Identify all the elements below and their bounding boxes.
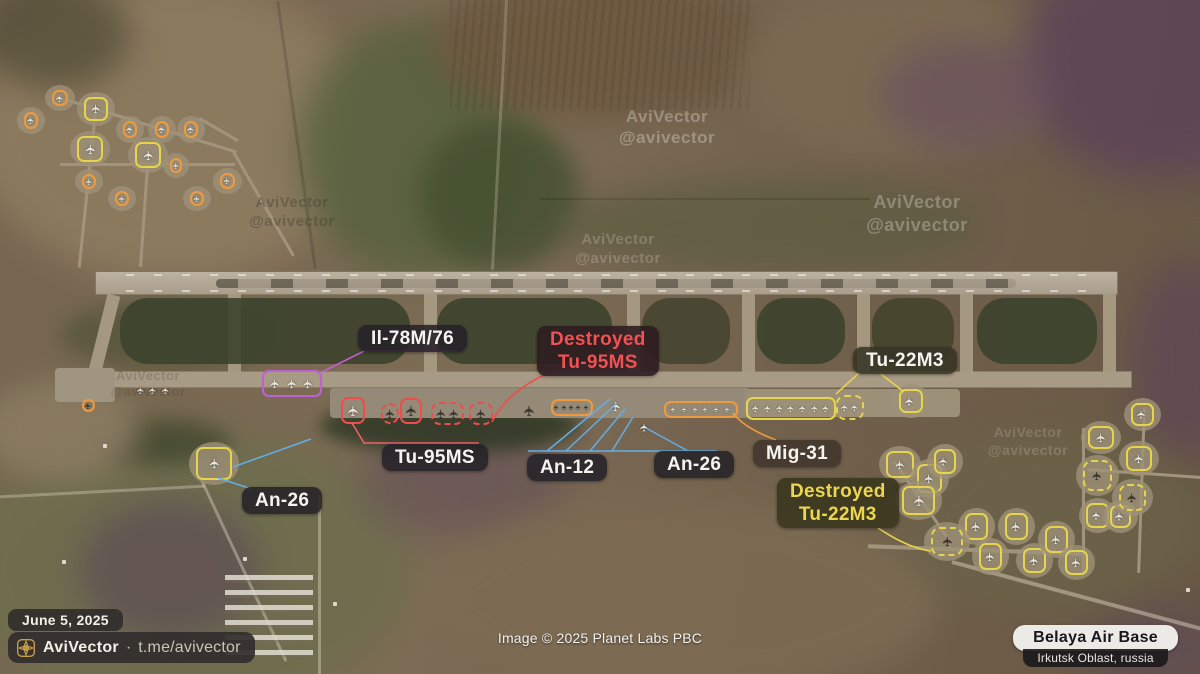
aircraft-icon: ✈: [404, 405, 418, 417]
building: [243, 557, 247, 561]
tu22m3-box: ✈: [902, 486, 935, 515]
aircraft-icon: ✈: [142, 150, 155, 161]
base-badge: Belaya Air Base Irkutsk Oblast, russia: [1013, 625, 1178, 667]
label-an26-right: An-26: [654, 451, 734, 478]
aircraft-icon: ✈: [569, 405, 576, 411]
aircraft-box: ✈: [82, 399, 95, 412]
aircraft-icon: ✈: [692, 407, 699, 413]
aircraft-icon: ✈: [118, 195, 126, 202]
destroyed-tu22m3-box: ✈: [931, 527, 963, 556]
aircraft-icon: ✈: [714, 407, 721, 413]
aircraft-icon: ✈: [193, 195, 201, 202]
aircraft-box: ✈: [52, 90, 68, 106]
annotated-satellite-view: AviVector@avivectorAviVector@avivectorAv…: [0, 0, 1200, 674]
label-line: Destroyed: [790, 480, 886, 503]
aircraft-icon: ✈: [822, 405, 831, 413]
aircraft-icon: ✈: [703, 407, 710, 413]
tu22m3-box: ✈: [899, 389, 923, 413]
tu95ms-box: ✈: [400, 398, 422, 424]
label-line: Tu-95MS: [558, 351, 638, 374]
aircraft-icon: ✈: [125, 126, 134, 134]
aircraft-icon: ✈: [798, 405, 807, 413]
aircraft-box: ✈: [115, 191, 129, 206]
tu22m3-box: ✈: [934, 449, 956, 474]
aircraft-icon: ✈: [763, 405, 772, 413]
label-line: Tu-22M3: [799, 503, 877, 526]
aircraft-icon: ✈: [641, 423, 652, 432]
infield-strip: [977, 298, 1097, 364]
tu22m3-box: ✈: [1126, 446, 1152, 471]
aircraft-box: ✈: [170, 158, 182, 173]
aircraft-icon: ✈: [148, 386, 157, 394]
aircraft-icon: ✈: [1051, 534, 1063, 544]
label-destroyed-tu22m3: Destroyed Tu-22M3: [777, 478, 899, 528]
aircraft-icon: ✈: [985, 551, 997, 561]
watermark: AviVector@avivector: [575, 231, 661, 269]
aircraft-icon: ✈: [940, 457, 951, 466]
aircraft-box: ✈: [190, 191, 204, 206]
aircraft-icon: ✈: [670, 407, 677, 413]
aircraft-icon: ✈: [223, 178, 231, 185]
aircraft-icon: ✈: [55, 94, 64, 102]
watermark-line: @avivector: [575, 250, 661, 269]
aircraft-icon: ✈: [1029, 555, 1041, 565]
aircraft-icon: ✈: [346, 405, 360, 417]
aircraft-icon: ✈: [941, 536, 954, 547]
aircraft-box: ✈: [123, 121, 137, 138]
watermark: AviVector@avivector: [619, 106, 715, 149]
aircraft-icon: ✈: [475, 408, 487, 418]
aircraft-box: ✈: [77, 136, 103, 162]
aircraft-icon: ✈: [786, 405, 795, 413]
tu22m3-box: ✈: [1088, 426, 1114, 449]
watermark: AviVector@avivector: [866, 191, 968, 236]
tu22m3-box: ✈: [1065, 550, 1088, 575]
runway-edge-marking: [126, 290, 1087, 292]
connector-taxiway: [742, 294, 755, 372]
aircraft-icon: ✈: [583, 405, 590, 411]
base-location: Irkutsk Oblast, russia: [1023, 649, 1167, 667]
building: [62, 560, 66, 564]
aircraft-box: ✈: [220, 173, 235, 189]
aircraft-icon: ✈: [971, 521, 983, 531]
aircraft-group-box: ✈✈✈✈✈: [551, 399, 593, 416]
connector-taxiway: [1103, 294, 1116, 372]
cloud-shadow: [880, 40, 1050, 150]
aircraft-box: ✈: [155, 121, 169, 138]
aircraft-box: ✈: [184, 121, 198, 138]
destroyed-tu22m3-box: ✈✈: [836, 395, 864, 420]
watermark-line: @avivector: [866, 214, 968, 237]
an26-box: ✈: [196, 447, 232, 480]
aircraft-icon: ✈: [172, 162, 180, 169]
label-tu95ms: Tu-95MS: [382, 444, 488, 471]
label-destroyed-tu95ms: Destroyed Tu-95MS: [537, 326, 659, 376]
aircraft-icon: ✈: [85, 178, 93, 185]
tu95ms-box: ✈: [341, 397, 365, 424]
infield-strip: [757, 298, 845, 364]
tu22m3-box: ✈: [979, 543, 1002, 570]
aircraft-icon: ✈: [26, 117, 35, 125]
runway-edge-marking: [126, 274, 1087, 276]
aircraft-icon: ✈: [840, 404, 849, 412]
aircraft-icon: ✈: [286, 378, 298, 388]
aircraft: ✈: [516, 400, 542, 422]
mig31-group-box: ✈✈✈✈✈✈: [664, 401, 738, 418]
tu22m3-box: ✈: [1131, 403, 1154, 426]
runway: [95, 271, 1118, 295]
watermark-line: @avivector: [988, 442, 1068, 460]
aircraft-icon: ✈: [1092, 511, 1103, 520]
building: [103, 444, 107, 448]
aircraft-icon: ✈: [186, 126, 195, 134]
aircraft-icon: ✈: [576, 405, 583, 411]
aircraft-icon: ✈: [90, 104, 102, 114]
il78-group-box: ✈✈✈: [262, 370, 322, 397]
aircraft-icon: ✈: [1071, 557, 1083, 567]
destroyed-tu95ms-box: ✈: [469, 402, 493, 425]
tu22m3-box: ✈: [1005, 513, 1028, 540]
aircraft-icon: ✈: [775, 405, 784, 413]
watermark-line: @avivector: [249, 213, 335, 232]
aircraft-icon: ✈: [522, 405, 536, 417]
watermark: AviVector@avivector: [988, 424, 1068, 459]
aircraft-icon: ✈: [810, 405, 819, 413]
aircraft-icon: ✈: [1127, 492, 1139, 502]
an26-aircraft: ✈: [636, 419, 656, 436]
aircraft-icon: ✈: [1137, 410, 1148, 419]
building: [333, 602, 337, 606]
aircraft-icon: ✈: [1011, 521, 1023, 531]
label-an26-left: An-26: [242, 487, 322, 514]
aircraft-box: ✈: [82, 174, 96, 189]
plowed-field-texture: [450, 0, 750, 110]
aircraft-icon: ✈: [84, 402, 92, 409]
aircraft-box: ✈: [135, 142, 161, 168]
label-mig31: Mig-31: [753, 440, 841, 467]
aircraft-icon: ✈: [906, 396, 917, 405]
tu22m3-group-box: ✈✈✈✈✈✈✈: [746, 397, 836, 420]
label-tu22m3: Tu-22M3: [853, 347, 957, 374]
aircraft-icon: ✈: [1095, 432, 1107, 442]
dirt-road: [318, 495, 321, 674]
aircraft-icon: ✈: [269, 378, 281, 388]
aircraft-icon: ✈: [609, 401, 622, 412]
aircraft-icon: ✈: [1092, 470, 1104, 480]
watermark-line: AviVector: [866, 191, 968, 214]
aircraft-icon: ✈: [911, 495, 925, 507]
aircraft-icon: ✈: [1133, 453, 1145, 463]
aircraft-icon: ✈: [681, 407, 688, 413]
destroyed-tu95ms-box: ✈: [381, 403, 399, 424]
runway-tire-marks: [216, 279, 1016, 288]
watermark-line: AviVector: [249, 194, 335, 213]
aircraft-box: ✈: [84, 97, 108, 121]
label-an12: An-12: [527, 454, 607, 481]
watermark-line: AviVector: [111, 368, 186, 384]
aircraft-icon: ✈: [851, 404, 860, 412]
watermark-line: AviVector: [988, 424, 1068, 442]
field-boundary: [540, 198, 870, 200]
aircraft-icon: ✈: [157, 126, 166, 134]
base-name: Belaya Air Base: [1013, 625, 1178, 651]
aircraft-icon: ✈: [435, 408, 447, 418]
label-line: Destroyed: [550, 328, 646, 351]
watermark-line: @avivector: [619, 127, 715, 148]
aircraft-icon: ✈: [161, 386, 170, 394]
an12-aircraft: ✈: [604, 396, 626, 416]
aircraft: ✈✈✈: [130, 384, 176, 396]
aircraft-icon: ✈: [208, 458, 221, 469]
watermark: AviVector@avivector: [249, 194, 335, 232]
destroyed-tu95ms-box: ✈✈: [431, 402, 464, 425]
aircraft-icon: ✈: [751, 405, 760, 413]
aircraft-box: ✈: [24, 112, 38, 129]
destroyed-tu22m3-box: ✈: [1119, 484, 1146, 511]
aircraft-icon: ✈: [448, 408, 460, 418]
aircraft-icon: ✈: [725, 407, 732, 413]
aircraft-icon: ✈: [554, 405, 561, 411]
aircraft-icon: ✈: [384, 408, 396, 418]
destroyed-tu22m3-box: ✈: [1083, 460, 1112, 491]
building: [1186, 588, 1190, 592]
aircraft-icon: ✈: [303, 378, 315, 388]
date-badge: June 5, 2025: [8, 609, 123, 631]
aircraft-icon: ✈: [84, 144, 97, 155]
aircraft-icon: ✈: [894, 459, 906, 469]
aircraft-icon: ✈: [136, 386, 145, 394]
watermark-line: AviVector: [619, 106, 715, 127]
label-il78m76: Il-78M/76: [358, 325, 467, 352]
watermark-line: AviVector: [575, 231, 661, 250]
aircraft-icon: ✈: [561, 405, 568, 411]
apron: [55, 368, 115, 402]
connector-taxiway: [960, 294, 973, 372]
